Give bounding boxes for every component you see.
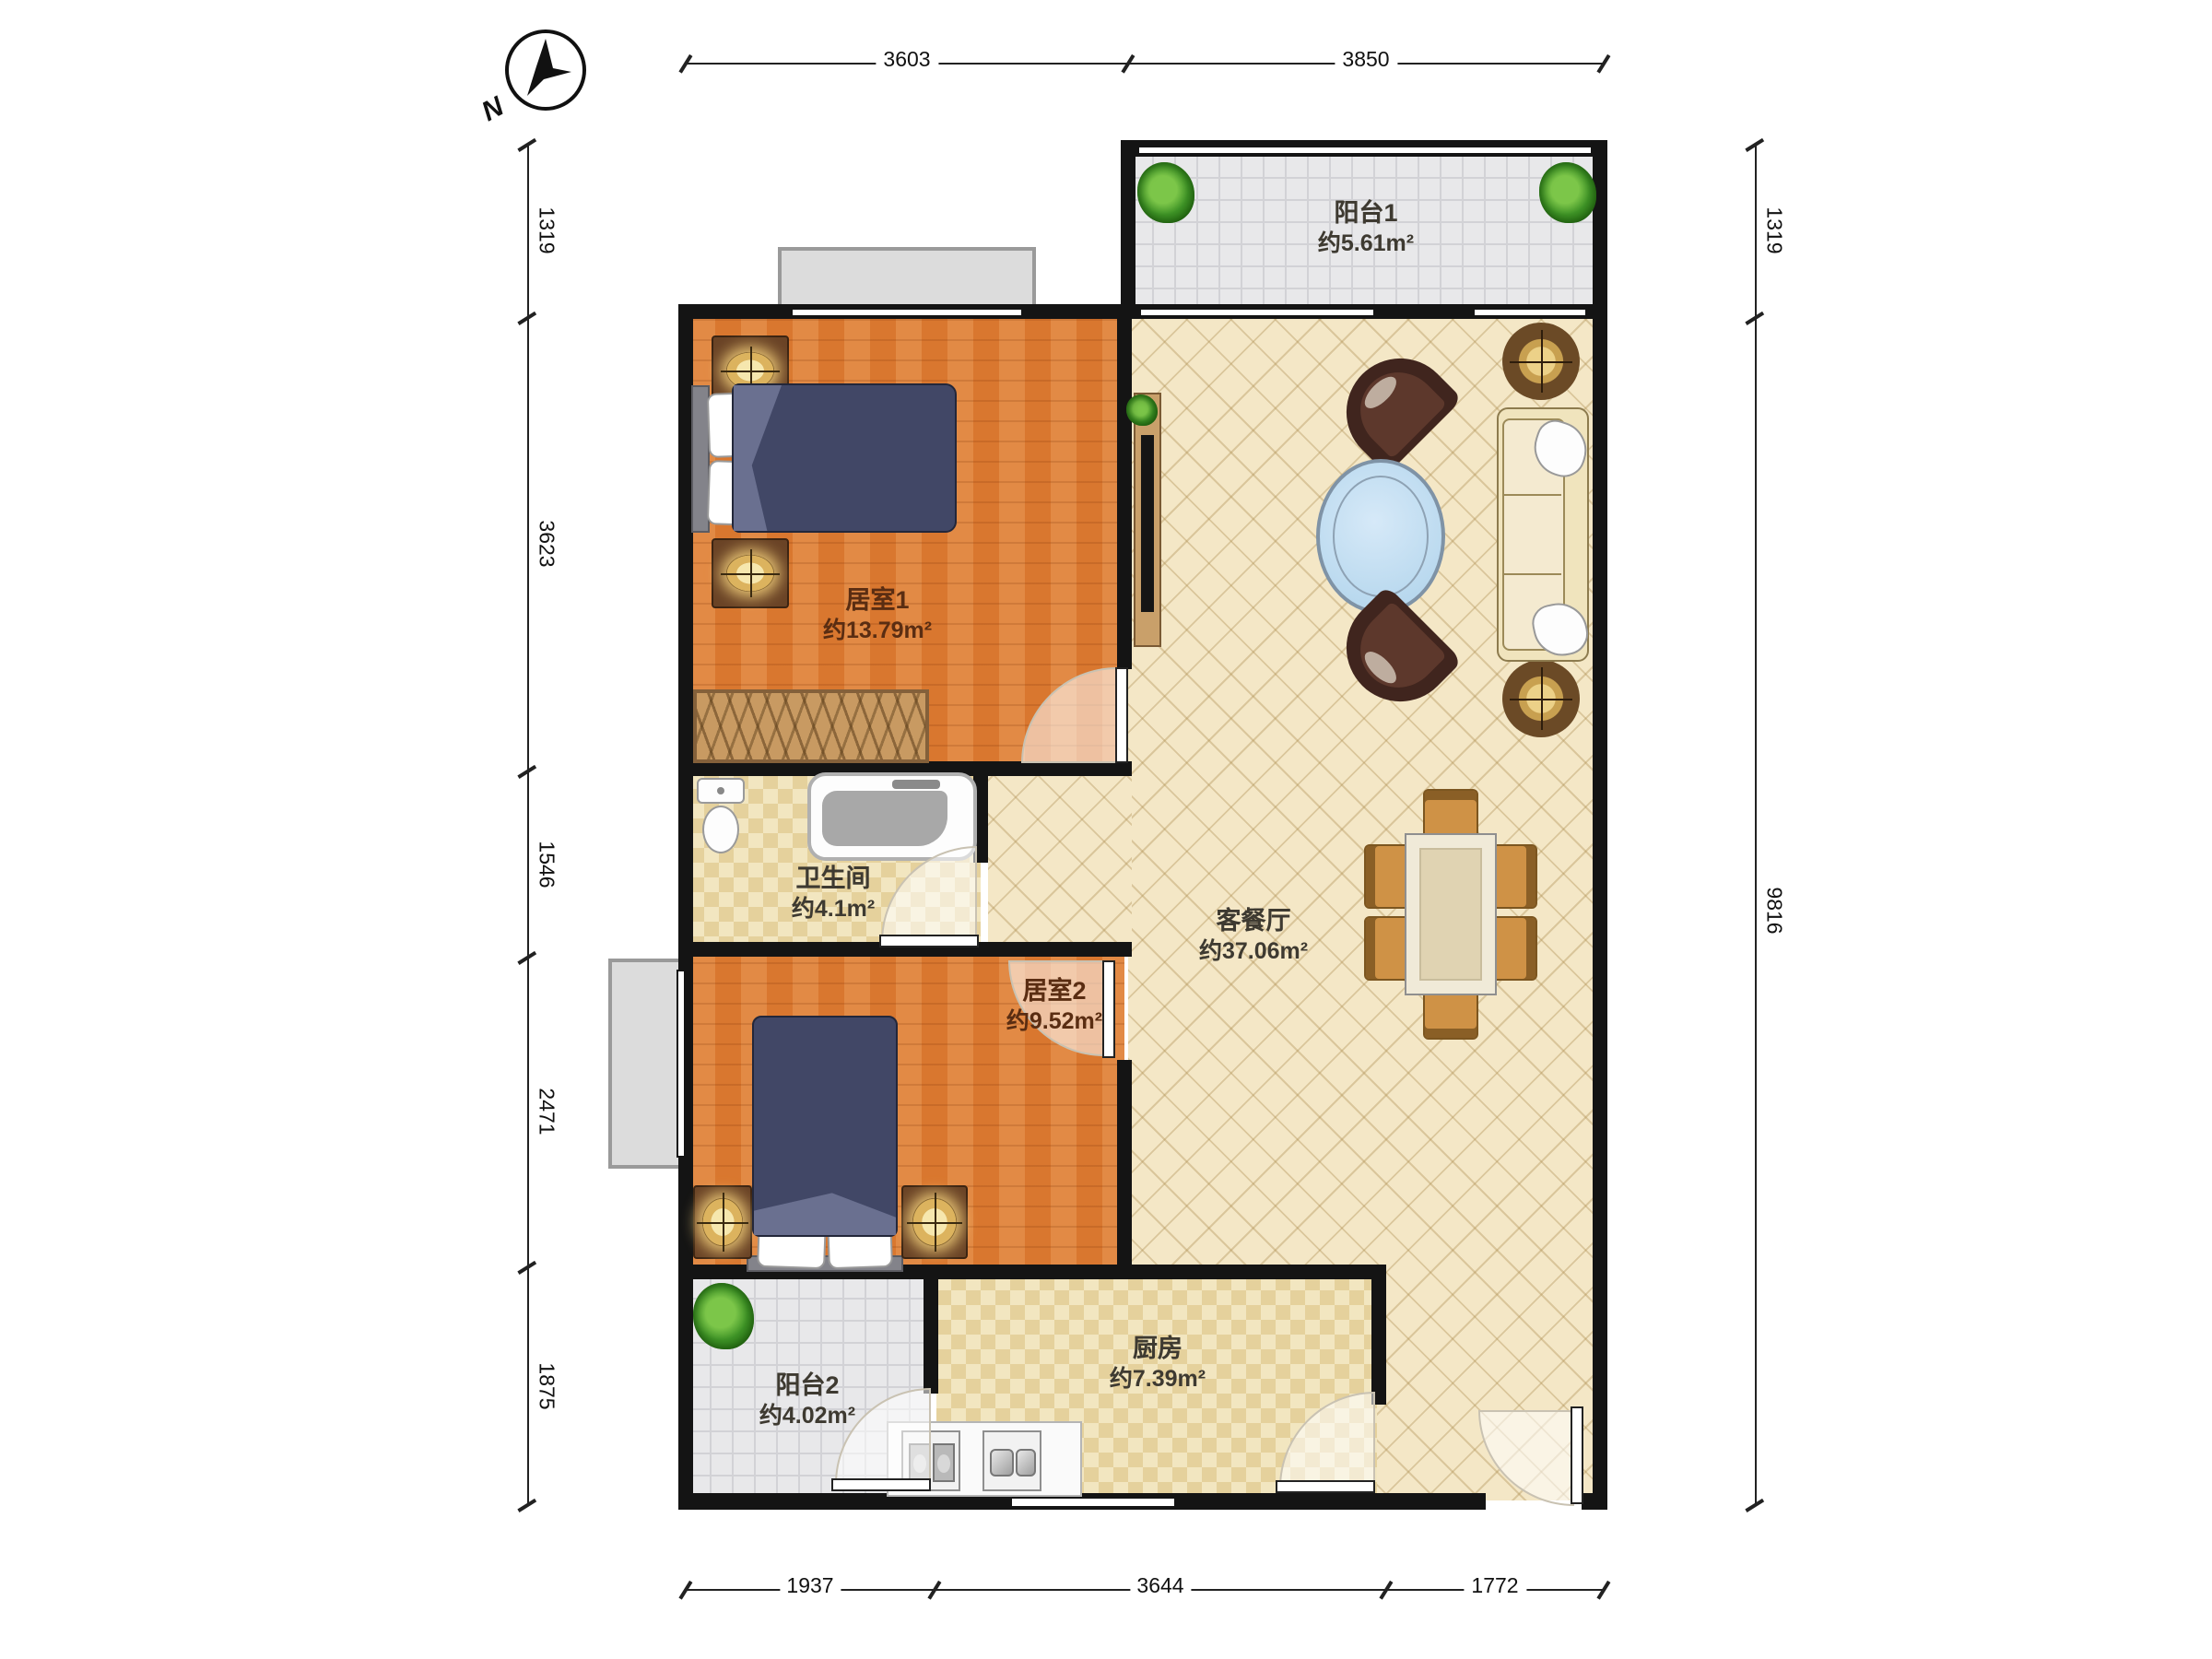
dim-value: 2471 [535,1080,557,1142]
wall [1121,140,1135,317]
dim-value: 3623 [535,512,557,574]
dim-value: 1937 [779,1576,841,1598]
window-living-balcony1-right [1473,308,1587,316]
dim-value: 3644 [1129,1576,1191,1598]
floor-plan: N [0,0,2212,1659]
window-kitchen [1010,1496,1176,1507]
room-name: 居室1 [748,586,1006,618]
door-bedroom1 [1115,667,1128,763]
window-living-balcony1-left [1139,308,1375,316]
wardrobe-icon [693,689,929,763]
dim-left-2: 3623 [527,317,529,771]
door-balcony2 [831,1478,931,1491]
compass-north-label: N [477,91,509,128]
label-living-dining: 客餐厅 约37.06m² [1124,907,1382,967]
wall [1371,1265,1386,1405]
room-name: 厨房 [1029,1335,1287,1366]
toilet-bowl-icon [702,806,739,853]
wall [1117,1060,1132,1276]
double-bed-icon [732,383,957,533]
door-kitchen [1276,1480,1375,1493]
room-name: 客餐厅 [1124,907,1382,938]
dim-value: 1319 [1762,199,1784,261]
tv-icon [1140,435,1153,612]
north-compass-icon: N [505,29,586,111]
dining-table-icon [1405,833,1497,995]
window-balcony1 [1137,145,1593,154]
dim-right-1: 1319 [1755,144,1757,317]
door-bathroom [879,935,979,947]
room-area: 约37.06m² [1124,938,1382,967]
dim-top-1: 3603 [686,63,1128,65]
potted-plant-icon [1539,162,1596,223]
label-balcony1: 阳台1 约5.61m² [1237,199,1495,259]
room-name: 卫生间 [704,865,962,896]
floor-planter-icon [1502,660,1580,737]
label-kitchen: 厨房 约7.39m² [1029,1335,1287,1394]
potted-plant-icon [693,1283,754,1349]
dim-value: 3603 [876,50,937,72]
dim-value: 1875 [535,1354,557,1416]
hallway-floor [988,774,1132,946]
dim-value: 1772 [1464,1576,1525,1598]
stove-icon [982,1430,1041,1491]
room-name: 阳台1 [1237,199,1495,230]
dim-left-3: 1546 [527,771,529,957]
nightstand-lamp-icon [693,1185,752,1259]
floor-planter-icon [1502,323,1580,400]
label-bedroom1: 居室1 约13.79m² [748,586,1006,646]
double-bed-icon [752,1016,898,1237]
room-area: 约4.02m² [678,1403,936,1431]
potted-plant-icon [1137,162,1194,223]
door-entrance [1571,1406,1583,1504]
dim-left-4: 2471 [527,957,529,1266]
room-area: 约5.61m² [1237,230,1495,259]
label-bathroom: 卫生间 约4.1m² [704,865,962,924]
dim-left-1: 1319 [527,144,529,317]
room-area: 约9.52m² [925,1008,1183,1037]
potted-plant-icon [1126,394,1158,426]
dim-value: 3850 [1335,50,1396,72]
dim-top-2: 3850 [1128,63,1604,65]
dining-chair-icon [1423,988,1478,1040]
label-bedroom2: 居室2 约9.52m² [925,977,1183,1037]
room-area: 约4.1m² [704,896,962,924]
window-bedroom1-bay [791,307,1023,316]
dim-bottom-2: 3644 [935,1589,1386,1591]
room-area: 约13.79m² [748,618,1006,646]
room-area: 约7.39m² [1029,1366,1287,1394]
room-name: 居室2 [925,977,1183,1008]
room-name: 阳台2 [678,1371,936,1403]
label-balcony2: 阳台2 约4.02m² [678,1371,936,1431]
dim-bottom-3: 1772 [1386,1589,1604,1591]
toilet-icon [697,778,745,804]
dim-value: 9816 [1762,879,1784,941]
wall [1117,304,1132,669]
dim-left-5: 1875 [527,1266,529,1504]
window-bedroom2-bay [676,970,685,1158]
dim-right-2: 9816 [1755,317,1757,1504]
dim-bottom-1: 1937 [686,1589,935,1591]
dim-value: 1546 [535,832,557,894]
wall [1582,1493,1607,1510]
compass-arrow-icon [509,33,575,100]
wall [1593,140,1607,1510]
bathtub-icon [807,772,977,861]
nightstand-lamp-icon [901,1185,968,1259]
dim-value: 1319 [535,199,557,261]
